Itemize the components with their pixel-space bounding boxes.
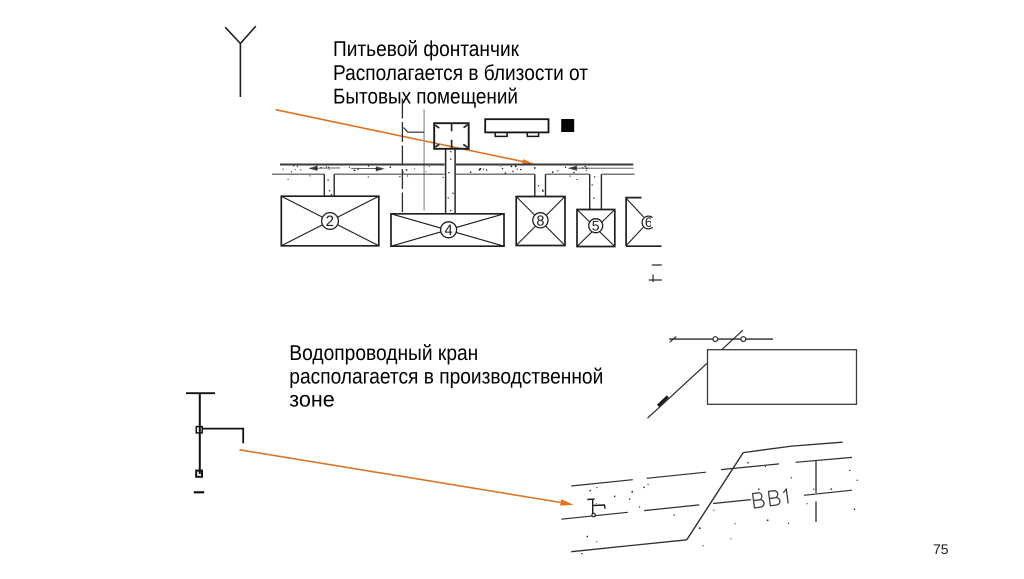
svg-text:Водопроводный кран: Водопроводный кран [289,341,478,365]
svg-text:8: 8 [536,213,544,229]
svg-text:зоне: зоне [289,388,334,412]
svg-text:Располагается в близости от: Располагается в близости от [333,61,588,85]
svg-text:Бытовых помещений: Бытовых помещений [333,84,518,108]
svg-text:Питьевой фонтанчик: Питьевой фонтанчик [333,37,520,61]
svg-text:75: 75 [933,541,949,557]
svg-text:5: 5 [592,218,600,234]
svg-text:располагается в производственн: располагается в производственной [289,365,603,389]
svg-text:2: 2 [326,213,334,230]
svg-text:4: 4 [444,222,452,239]
